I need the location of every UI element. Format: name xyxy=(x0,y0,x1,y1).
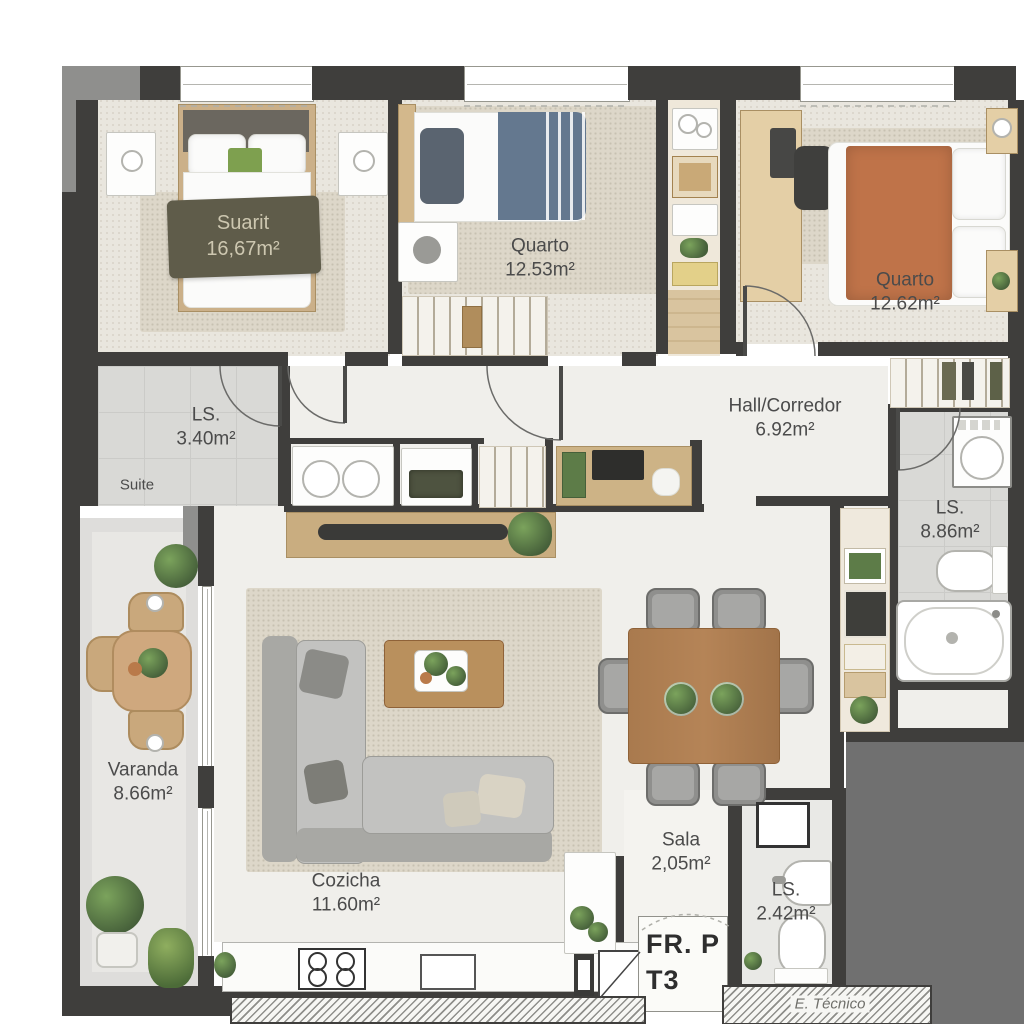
console-green-tray xyxy=(562,452,586,498)
suite-label: Suarit 16,67m² xyxy=(206,210,279,262)
closet-drawer xyxy=(672,262,718,286)
varanda-label: Varanda 8.66m² xyxy=(108,759,178,808)
plan-stamp-line1: FR. P xyxy=(646,926,720,962)
closet-tray-plate-icon xyxy=(678,114,698,134)
washing-machine-panel xyxy=(958,420,1000,430)
wall-closet-quarto2 xyxy=(720,100,736,354)
laundry-nook-top xyxy=(284,438,484,444)
dining-flowers-2 xyxy=(710,682,744,716)
ls-main-label-name: LS. xyxy=(920,497,979,521)
varanda-plant-big xyxy=(86,876,144,934)
cozinha-label: Cozicha 11.60m² xyxy=(312,870,381,919)
ls-main-label-area: 8.86m² xyxy=(920,521,979,545)
suite-lamp-left-icon xyxy=(121,150,143,172)
wall-top-2 xyxy=(312,66,464,100)
wall-balcony-a xyxy=(198,506,214,586)
varanda-label-name: Varanda xyxy=(108,759,178,783)
varanda-corner-plant xyxy=(154,544,198,588)
wall-balcony-outer xyxy=(62,506,80,1016)
quarto-mid-wardrobe-box xyxy=(462,306,482,348)
console-cloth xyxy=(652,468,680,496)
laundry-nook-left xyxy=(284,438,291,508)
corridor-closet-box2 xyxy=(962,362,974,400)
sala-label: Sala 2,05m² xyxy=(651,829,710,878)
shelf-art xyxy=(844,590,888,638)
stove-burner-4 xyxy=(336,968,355,987)
varanda-label-area: 8.66m² xyxy=(108,783,178,807)
entry-closet xyxy=(479,446,546,508)
laundry-nook-div2 xyxy=(471,438,478,508)
quarto-right-label-area: 12.62m² xyxy=(870,293,940,317)
ls-social-label-name: LS. xyxy=(756,879,815,903)
laundry-nook-div1 xyxy=(393,438,400,508)
sofa-back-left xyxy=(262,636,298,862)
wall-under-quarto2-a xyxy=(736,342,746,356)
plan-stamp-line2: T3 xyxy=(646,962,720,998)
quarto-mid-nightstand-bowl xyxy=(413,236,441,264)
ls-social-plant xyxy=(744,952,762,970)
stove xyxy=(298,948,366,990)
quarto-mid-window xyxy=(464,66,630,102)
shelf-green-tray xyxy=(844,548,886,584)
cozinha-label-name: Cozicha xyxy=(312,870,381,894)
balcony-glass-2 xyxy=(202,808,212,958)
quarto-right-monitor xyxy=(770,128,796,178)
quarto-right-lamp-icon xyxy=(992,118,1012,138)
ls-main-label: LS. 8.86m² xyxy=(920,497,979,546)
sofa-pillow-gray xyxy=(303,759,349,805)
ls-social-label: LS. 2.42m² xyxy=(756,879,815,928)
wall-top-1 xyxy=(140,66,180,100)
toilet-main xyxy=(936,550,998,592)
coffee-table-bowl-icon xyxy=(420,672,432,684)
bathtub-drain-icon xyxy=(946,632,958,644)
sofa-pillow-dark xyxy=(298,648,350,700)
hall-label-area: 6.92m² xyxy=(729,419,842,443)
varanda-table-plant xyxy=(138,648,168,678)
dining-chair-bottom-1 xyxy=(646,760,700,806)
wall-under-quarto2-b xyxy=(818,342,1008,356)
sala-label-name: Sala xyxy=(651,829,710,853)
laundry-sink-right xyxy=(342,460,380,498)
quarto-mid-label: Quarto 12.53m² xyxy=(505,235,575,284)
wall-left-light xyxy=(62,100,76,192)
quarto-right-pillow-top xyxy=(952,148,1006,220)
wall-top-3 xyxy=(628,66,800,100)
shelf-tray-wood xyxy=(844,672,886,698)
laundry-nook-div3 xyxy=(545,438,553,508)
bathtub-faucet-icon xyxy=(992,610,1000,618)
varanda-table-pot-icon xyxy=(128,662,142,676)
wall-under-suite-b xyxy=(345,352,388,366)
ls-social-label-area: 2.42m² xyxy=(756,903,815,927)
shelf-plant xyxy=(850,696,878,724)
sofa-pillow-beige xyxy=(475,773,526,819)
wall-balcony-c xyxy=(198,956,214,990)
kitchen-hatch-strip xyxy=(230,996,646,1024)
closet-wood-floor xyxy=(668,290,720,354)
wall-corner-light xyxy=(62,66,140,100)
hall-label-name: Hall/Corredor xyxy=(729,395,842,419)
closet-plant xyxy=(680,238,708,258)
shelf-tray-light xyxy=(844,644,886,670)
balcony-glass-1 xyxy=(202,586,212,768)
wall-under-suite-a xyxy=(98,352,288,366)
wall-top-4 xyxy=(954,66,1016,100)
tecnico-label: E. Técnico xyxy=(791,996,870,1013)
tv-panel xyxy=(318,524,508,540)
stove-burner-3 xyxy=(308,968,327,987)
quarto-right-nightstand-plant xyxy=(992,272,1010,290)
dining-flowers-1 xyxy=(664,682,698,716)
adjacent-slab xyxy=(846,740,1024,1024)
service-door-inner xyxy=(578,960,590,990)
dining-chair-bottom-2 xyxy=(712,760,766,806)
laundry-sink-left xyxy=(302,460,340,498)
sala-label-area: 2,05m² xyxy=(651,853,710,877)
ls-suite-label-area: 3.40m² xyxy=(176,428,235,452)
quarto-mid-label-name: Quarto xyxy=(505,235,575,259)
corridor-closet-box3 xyxy=(990,362,1002,400)
wall-ls-social-left xyxy=(728,788,742,1012)
varanda-plant-pot xyxy=(96,932,138,968)
quarto-mid-label-area: 12.53m² xyxy=(505,259,575,283)
corridor-closet-box1 xyxy=(942,362,956,400)
ls-suite-label-name: LS. xyxy=(176,404,235,428)
quarto-mid-blanket-stripes xyxy=(546,112,586,220)
cabinet-plant-2 xyxy=(588,922,608,942)
kitchen-plant-left xyxy=(214,952,236,978)
quarto-right-label-name: Quarto xyxy=(870,269,940,293)
suite-label-name: Suarit xyxy=(206,210,279,236)
ls-social-cabinet xyxy=(756,802,810,848)
quarto-right-label: Quarto 12.62m² xyxy=(870,269,940,318)
wall-bottom-left xyxy=(62,986,232,1016)
pantry-contents xyxy=(409,470,463,498)
varanda-grass-plant xyxy=(148,928,194,988)
varanda-cup-top-icon xyxy=(146,594,164,612)
bathroom-lower-floor xyxy=(898,690,1008,728)
ls-suite-label: LS. 3.40m² xyxy=(176,404,235,453)
quarto-mid-pillow xyxy=(420,128,464,204)
dining-table xyxy=(628,628,780,764)
varanda-cup-bottom-icon xyxy=(146,734,164,752)
sideboard-plant xyxy=(508,512,552,556)
closet-frame-art xyxy=(672,156,718,198)
wall-ls-social-right xyxy=(832,788,846,988)
console-tv xyxy=(592,450,644,480)
plan-stamp: FR. P T3 xyxy=(646,926,720,999)
ls-social-toilet-tank xyxy=(774,968,828,984)
sofa-pillow-light xyxy=(442,790,481,828)
kitchen-sink xyxy=(420,954,476,990)
coffee-table-plant-2 xyxy=(446,666,466,686)
suite-tag-label: Suite xyxy=(120,475,154,494)
suite-label-area: 16,67m² xyxy=(206,236,279,262)
hall-dining-wall xyxy=(756,496,888,506)
suite-window xyxy=(180,66,314,102)
hall-label: Hall/Corredor 6.92m² xyxy=(729,395,842,444)
wall-quarto-closet xyxy=(656,100,668,354)
washing-machine-drum-icon xyxy=(960,436,1004,480)
quarto-right-window xyxy=(800,66,956,102)
suite-lamp-right-icon xyxy=(353,150,375,172)
wall-balcony-b xyxy=(198,766,214,808)
closet-white-box xyxy=(672,204,718,236)
closet-tray-cup-icon xyxy=(696,122,712,138)
wall-under-quarto-b xyxy=(622,352,656,366)
floor-plan: Suarit 16,67m² Quarto 12.53m² Quarto 12.… xyxy=(0,0,1024,1024)
toilet-main-tank xyxy=(992,546,1008,594)
cozinha-label-area: 11.60m² xyxy=(312,894,381,918)
